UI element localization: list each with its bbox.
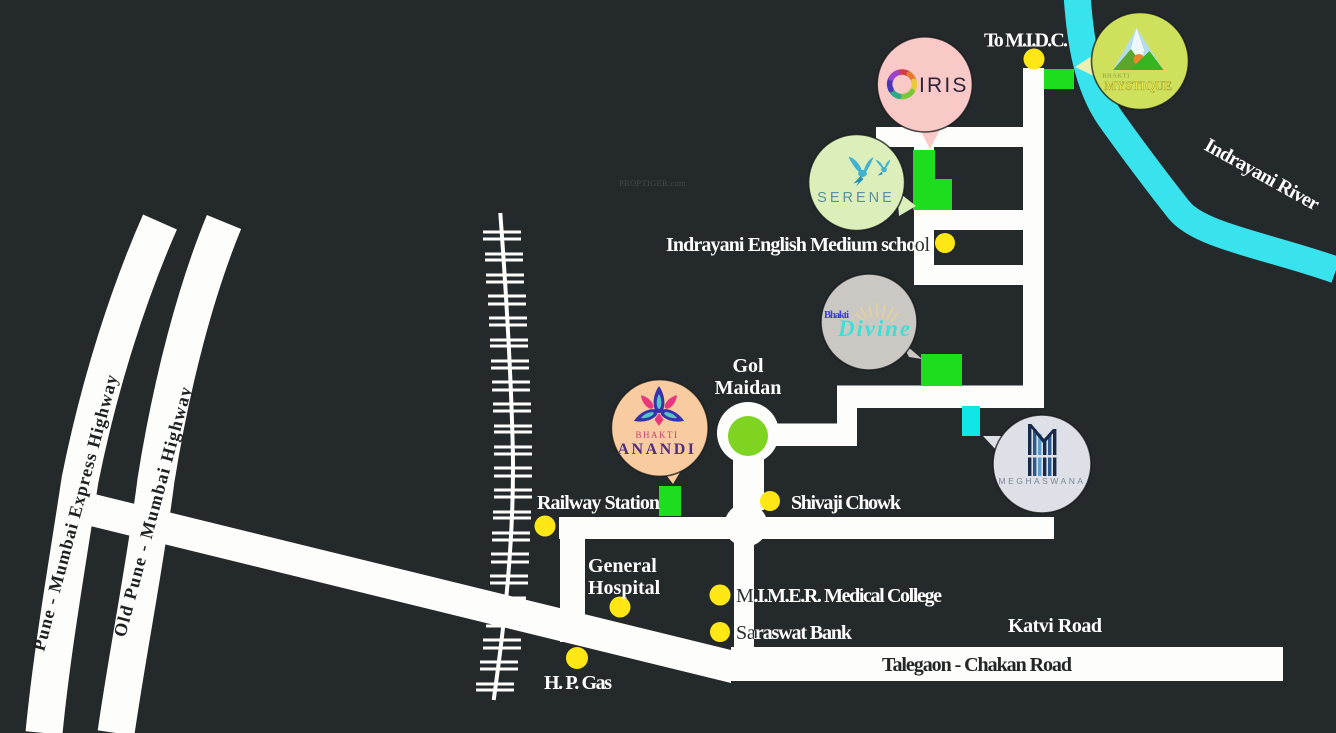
svg-text:IRIS: IRIS — [919, 74, 969, 97]
svg-text:Indrayani English Medium schoo: Indrayani English Medium school — [666, 234, 930, 256]
svg-text:PROPTIGER.com: PROPTIGER.com — [619, 178, 686, 188]
svg-text:MYSTIQUE: MYSTIQUE — [1105, 79, 1173, 93]
svg-text:To M.I.D.C.: To M.I.D.C. — [984, 30, 1068, 52]
svg-text:General: General — [588, 555, 657, 577]
svg-text:ANANDI: ANANDI — [618, 441, 697, 458]
svg-text:Shivaji Chowk: Shivaji Chowk — [791, 492, 902, 514]
svg-text:Railway Station: Railway Station — [537, 492, 660, 514]
svg-text:Katvi Road: Katvi Road — [1008, 615, 1102, 637]
svg-text:H. P. Gas: H. P. Gas — [544, 672, 612, 694]
svg-text:MEGHASWANA: MEGHASWANA — [998, 476, 1085, 486]
svg-text:Talegaon - Chakan Road: Talegaon - Chakan Road — [882, 654, 1072, 676]
svg-text:Hospital: Hospital — [588, 577, 661, 599]
svg-text:Maidan: Maidan — [715, 377, 782, 399]
svg-text:Divine: Divine — [837, 316, 910, 341]
svg-text:BHAKTI: BHAKTI — [636, 430, 679, 440]
svg-text:SERENE: SERENE — [817, 190, 895, 206]
svg-text:M.I.M.E.R. Medical College: M.I.M.E.R. Medical College — [736, 585, 942, 607]
svg-text:Gol: Gol — [732, 355, 764, 377]
